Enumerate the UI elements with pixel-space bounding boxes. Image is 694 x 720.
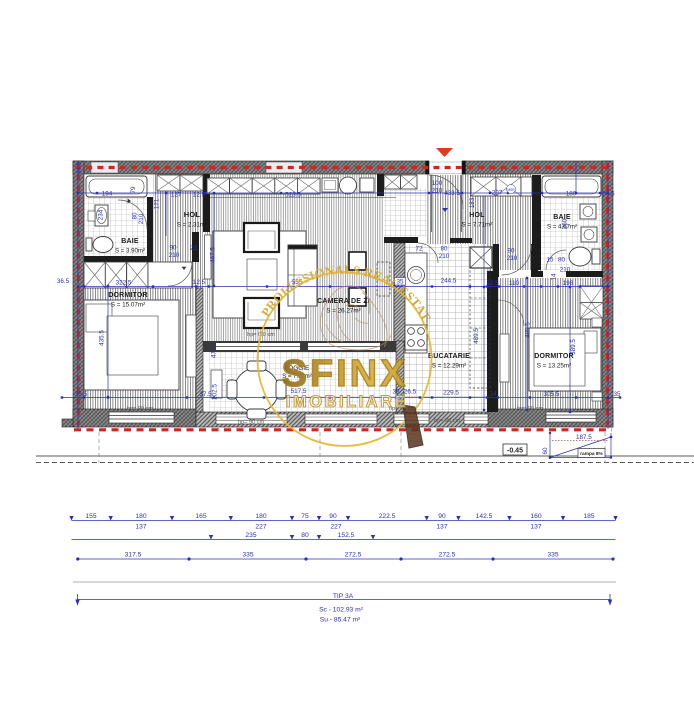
svg-text:180: 180 — [255, 513, 266, 520]
svg-text:12.5: 12.5 — [486, 280, 499, 287]
svg-text:202.5: 202.5 — [212, 384, 219, 400]
svg-text:35: 35 — [613, 391, 621, 398]
svg-text:305.5: 305.5 — [544, 391, 560, 398]
svg-text:80: 80 — [301, 532, 309, 539]
svg-text:187.5: 187.5 — [576, 434, 592, 441]
svg-text:DORMITOR: DORMITOR — [534, 353, 574, 360]
svg-text:14: 14 — [551, 273, 558, 281]
svg-text:210: 210 — [138, 213, 145, 224]
svg-text:MSR: MSR — [507, 188, 515, 192]
svg-text:S = 4.67m²: S = 4.67m² — [547, 224, 577, 231]
svg-text:185: 185 — [583, 513, 594, 520]
svg-text:435.5: 435.5 — [99, 330, 106, 346]
svg-text:rampa 8%: rampa 8% — [580, 451, 603, 457]
svg-text:37.5: 37.5 — [199, 391, 212, 398]
svg-text:210: 210 — [169, 252, 180, 259]
svg-text:HOL: HOL — [184, 210, 201, 219]
svg-text:272.5: 272.5 — [439, 552, 456, 559]
svg-text:36.5: 36.5 — [75, 391, 88, 398]
svg-text:235: 235 — [245, 532, 256, 539]
svg-text:227: 227 — [330, 524, 341, 531]
svg-text:72: 72 — [415, 246, 423, 253]
svg-text:335: 335 — [547, 552, 558, 559]
svg-text:171: 171 — [154, 198, 161, 209]
svg-text:TIP 3A: TIP 3A — [333, 593, 354, 600]
svg-text:23: 23 — [190, 245, 198, 252]
svg-text:210: 210 — [439, 253, 450, 260]
svg-text:210: 210 — [560, 267, 571, 274]
svg-text:433.5: 433.5 — [444, 190, 460, 197]
svg-text:15: 15 — [546, 257, 554, 264]
svg-text:234: 234 — [98, 209, 105, 220]
svg-text:137: 137 — [436, 524, 447, 531]
svg-text:BAIE: BAIE — [553, 214, 571, 221]
svg-text:S = 15.07m²: S = 15.07m² — [111, 302, 145, 309]
svg-text:222.5: 222.5 — [379, 513, 396, 520]
svg-text:110: 110 — [509, 280, 520, 287]
svg-text:75: 75 — [301, 513, 309, 520]
svg-text:210: 210 — [432, 188, 443, 195]
svg-text:142.5: 142.5 — [476, 513, 493, 520]
svg-text:-0.45: -0.45 — [507, 448, 523, 455]
svg-text:80: 80 — [440, 246, 448, 253]
svg-text:90: 90 — [507, 248, 515, 255]
svg-text:S = 13.25m²: S = 13.25m² — [537, 363, 571, 370]
svg-text:47.5: 47.5 — [211, 345, 218, 358]
svg-text:90: 90 — [169, 245, 177, 252]
svg-text:S = 12.29m²: S = 12.29m² — [432, 363, 466, 370]
svg-text:hp= 90 cm: hp= 90 cm — [517, 406, 544, 412]
svg-text:hp= 90 cm: hp= 90 cm — [127, 406, 154, 412]
svg-text:523.5: 523.5 — [285, 192, 301, 199]
svg-text:14: 14 — [489, 391, 497, 398]
svg-text:207: 207 — [492, 190, 503, 197]
svg-text:BUCATARIE: BUCATARIE — [428, 353, 470, 360]
svg-text:Sc - 102.93 m²: Sc - 102.93 m² — [319, 607, 364, 614]
svg-text:HOL: HOL — [469, 212, 485, 219]
svg-text:36.5: 36.5 — [602, 191, 615, 198]
svg-text:210: 210 — [507, 255, 518, 262]
svg-text:183: 183 — [469, 197, 476, 208]
svg-text:127: 127 — [171, 192, 182, 199]
svg-text:hp= 90 cm: hp= 90 cm — [434, 418, 461, 424]
svg-text:84.5: 84.5 — [76, 161, 83, 174]
svg-text:12.5: 12.5 — [193, 192, 206, 199]
svg-text:152.5: 152.5 — [338, 532, 355, 539]
svg-text:137: 137 — [530, 524, 541, 531]
svg-text:244.5: 244.5 — [441, 278, 457, 285]
svg-text:489.5: 489.5 — [473, 328, 480, 344]
svg-text:467.5: 467.5 — [210, 247, 217, 263]
svg-text:90: 90 — [329, 513, 337, 520]
svg-text:165: 165 — [195, 513, 206, 520]
svg-text:hp= 90 cm: hp= 90 cm — [238, 420, 265, 426]
svg-text:SFINX: SFINX — [282, 353, 409, 395]
svg-text:BAIE: BAIE — [121, 238, 139, 245]
svg-text:180: 180 — [135, 513, 146, 520]
svg-text:60: 60 — [542, 447, 549, 455]
svg-text:36.5: 36.5 — [57, 278, 70, 285]
svg-text:160: 160 — [530, 513, 541, 520]
svg-text:317.5: 317.5 — [125, 552, 142, 559]
svg-text:229.5: 229.5 — [443, 390, 459, 397]
svg-text:IMOBILIARE: IMOBILIARE — [286, 393, 408, 411]
svg-text:322.5: 322.5 — [116, 280, 132, 287]
svg-text:90: 90 — [438, 513, 446, 520]
svg-text:137: 137 — [135, 524, 146, 531]
svg-text:155: 155 — [85, 513, 96, 520]
svg-text:100: 100 — [432, 180, 443, 187]
svg-text:489.5: 489.5 — [525, 322, 532, 338]
svg-text:Su - 85.47 m²: Su - 85.47 m² — [320, 617, 361, 624]
svg-text:S = 7.71m²: S = 7.71m² — [462, 222, 493, 229]
svg-text:S = 26.27m²: S = 26.27m² — [326, 308, 360, 315]
svg-text:S = 2.31m²: S = 2.31m² — [177, 222, 207, 229]
svg-text:79: 79 — [130, 186, 137, 194]
svg-text:12.5: 12.5 — [193, 279, 206, 286]
svg-text:194: 194 — [102, 191, 113, 198]
svg-text:180: 180 — [566, 191, 577, 198]
svg-text:80: 80 — [558, 257, 566, 264]
svg-text:DORMITOR: DORMITOR — [108, 292, 148, 299]
svg-text:335: 335 — [242, 552, 253, 559]
svg-text:272.5: 272.5 — [345, 552, 362, 559]
svg-text:227: 227 — [255, 524, 266, 531]
svg-text:198: 198 — [563, 280, 574, 287]
svg-text:S = 3.90m²: S = 3.90m² — [115, 248, 145, 255]
